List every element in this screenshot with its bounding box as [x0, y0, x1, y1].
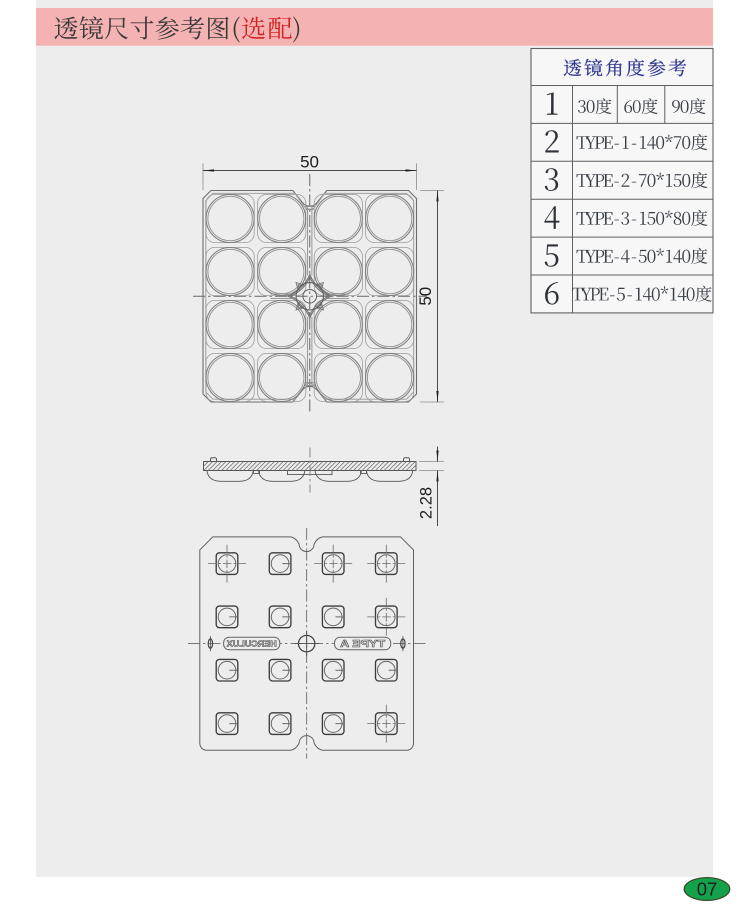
svg-text:50: 50: [416, 287, 435, 306]
svg-text:50: 50: [300, 152, 319, 171]
svg-text:2.28: 2.28: [418, 487, 436, 519]
svg-text:TYPE A: TYPE A: [340, 638, 385, 650]
svg-text:HERCULUX: HERCULUX: [226, 639, 276, 649]
svg-text:07: 07: [697, 879, 718, 900]
